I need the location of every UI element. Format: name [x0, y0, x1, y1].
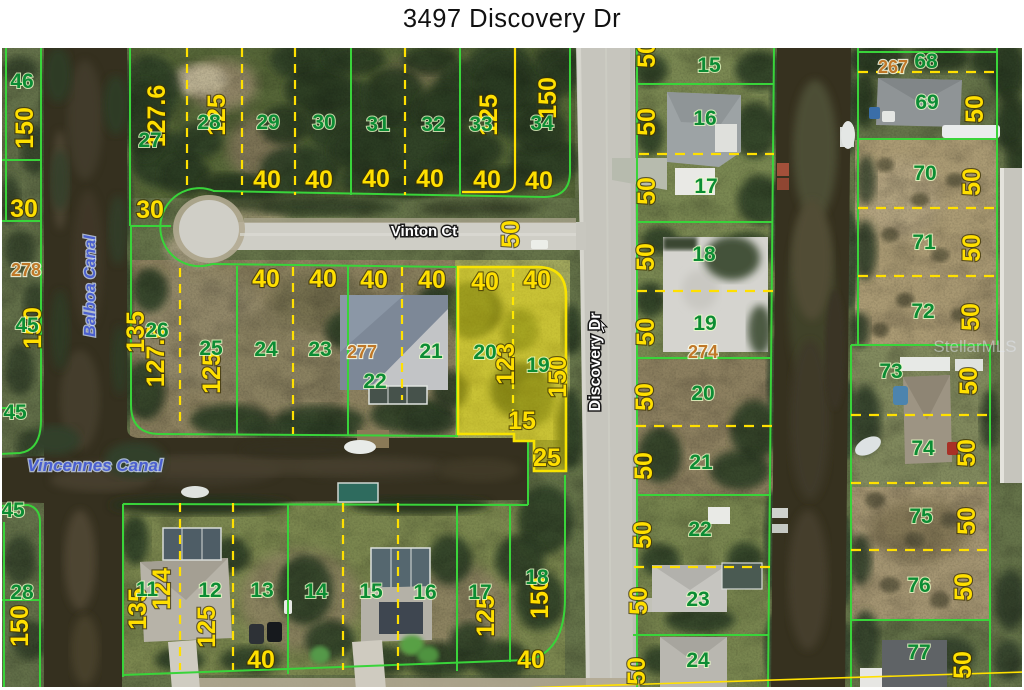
svg-text:40: 40: [305, 166, 333, 194]
svg-text:33: 33: [469, 113, 492, 136]
svg-text:16: 16: [413, 581, 436, 604]
svg-text:50: 50: [958, 234, 986, 262]
svg-text:StellarMLS: StellarMLS: [933, 337, 1016, 356]
svg-text:40: 40: [471, 268, 499, 296]
svg-text:50: 50: [633, 108, 661, 136]
svg-text:50: 50: [950, 573, 978, 601]
svg-text:23: 23: [308, 338, 331, 361]
svg-text:40: 40: [517, 646, 545, 674]
svg-text:40: 40: [252, 265, 280, 293]
svg-text:40: 40: [247, 646, 275, 674]
svg-text:40: 40: [362, 165, 390, 193]
svg-text:16: 16: [693, 107, 716, 130]
svg-text:50: 50: [630, 452, 658, 480]
svg-text:50: 50: [632, 318, 660, 346]
svg-text:75: 75: [909, 505, 933, 528]
svg-text:17: 17: [468, 581, 491, 604]
svg-text:13: 13: [250, 579, 273, 602]
svg-text:50: 50: [623, 657, 651, 685]
svg-text:150: 150: [6, 605, 34, 647]
svg-text:125: 125: [193, 606, 221, 648]
svg-text:277: 277: [347, 342, 377, 362]
svg-text:40: 40: [473, 166, 501, 194]
svg-text:29: 29: [256, 111, 279, 134]
svg-text:27: 27: [138, 129, 161, 152]
svg-text:50: 50: [949, 651, 977, 679]
svg-text:19: 19: [693, 312, 716, 335]
svg-text:31: 31: [366, 113, 390, 136]
svg-text:40: 40: [309, 265, 337, 293]
svg-text:50: 50: [629, 521, 657, 549]
svg-text:70: 70: [913, 162, 936, 185]
svg-text:18: 18: [525, 566, 549, 589]
svg-text:74: 74: [911, 437, 935, 460]
svg-text:30: 30: [10, 195, 38, 223]
svg-text:24: 24: [686, 649, 710, 672]
svg-text:76: 76: [907, 574, 930, 597]
svg-text:18: 18: [692, 243, 716, 266]
svg-text:150: 150: [11, 107, 39, 149]
svg-text:40: 40: [523, 266, 551, 294]
svg-text:26: 26: [145, 319, 168, 342]
svg-text:50: 50: [955, 367, 983, 395]
svg-text:20: 20: [473, 341, 496, 364]
svg-text:77: 77: [907, 641, 930, 664]
svg-text:25: 25: [199, 337, 223, 360]
svg-text:50: 50: [632, 243, 660, 271]
svg-text:12: 12: [198, 579, 221, 602]
svg-text:30: 30: [136, 196, 164, 224]
svg-text:50: 50: [633, 177, 661, 205]
svg-text:73: 73: [879, 360, 902, 383]
svg-text:50: 50: [631, 383, 659, 411]
svg-text:40: 40: [418, 266, 446, 294]
svg-text:25: 25: [533, 444, 561, 472]
svg-text:22: 22: [688, 518, 711, 541]
svg-text:24: 24: [254, 338, 278, 361]
svg-text:30: 30: [312, 111, 335, 134]
svg-text:11: 11: [136, 578, 159, 601]
svg-text:50: 50: [961, 95, 989, 123]
svg-text:40: 40: [525, 167, 553, 195]
svg-text:Discovery Dr: Discovery Dr: [587, 313, 604, 412]
svg-text:40: 40: [253, 166, 281, 194]
svg-text:17: 17: [694, 175, 717, 198]
svg-text:21: 21: [689, 451, 713, 474]
svg-text:20: 20: [691, 382, 714, 405]
svg-text:45: 45: [3, 401, 27, 424]
svg-text:40: 40: [416, 165, 444, 193]
svg-text:40: 40: [360, 266, 388, 294]
svg-text:15: 15: [359, 580, 383, 603]
svg-text:19: 19: [526, 354, 549, 377]
svg-text:72: 72: [911, 300, 934, 323]
svg-text:71: 71: [912, 231, 936, 254]
svg-text:22: 22: [363, 370, 386, 393]
svg-text:68: 68: [914, 50, 938, 73]
svg-text:Balboa Canal: Balboa Canal: [82, 235, 99, 337]
svg-text:50: 50: [958, 168, 986, 196]
svg-text:50: 50: [625, 587, 653, 615]
svg-text:23: 23: [686, 588, 709, 611]
svg-text:50: 50: [953, 439, 981, 467]
svg-text:278: 278: [11, 260, 41, 280]
svg-text:45: 45: [15, 314, 39, 337]
svg-text:32: 32: [421, 113, 444, 136]
svg-text:34: 34: [530, 112, 554, 135]
svg-text:46: 46: [10, 70, 33, 93]
svg-text:274: 274: [688, 342, 718, 362]
svg-text:Vincennes Canal: Vincennes Canal: [27, 456, 164, 475]
svg-text:15: 15: [508, 407, 536, 435]
svg-text:50: 50: [497, 220, 525, 248]
svg-text:15: 15: [697, 54, 721, 77]
svg-text:50: 50: [953, 507, 981, 535]
svg-text:267: 267: [878, 57, 908, 77]
svg-text:21: 21: [419, 340, 443, 363]
svg-text:28: 28: [10, 581, 34, 604]
svg-text:69: 69: [915, 91, 938, 114]
svg-text:14: 14: [304, 580, 328, 603]
svg-text:45: 45: [1, 499, 25, 522]
svg-text:50: 50: [633, 40, 661, 68]
svg-text:Vinton Ct: Vinton Ct: [391, 223, 457, 240]
svg-text:28: 28: [197, 111, 221, 134]
svg-text:50: 50: [957, 303, 985, 331]
